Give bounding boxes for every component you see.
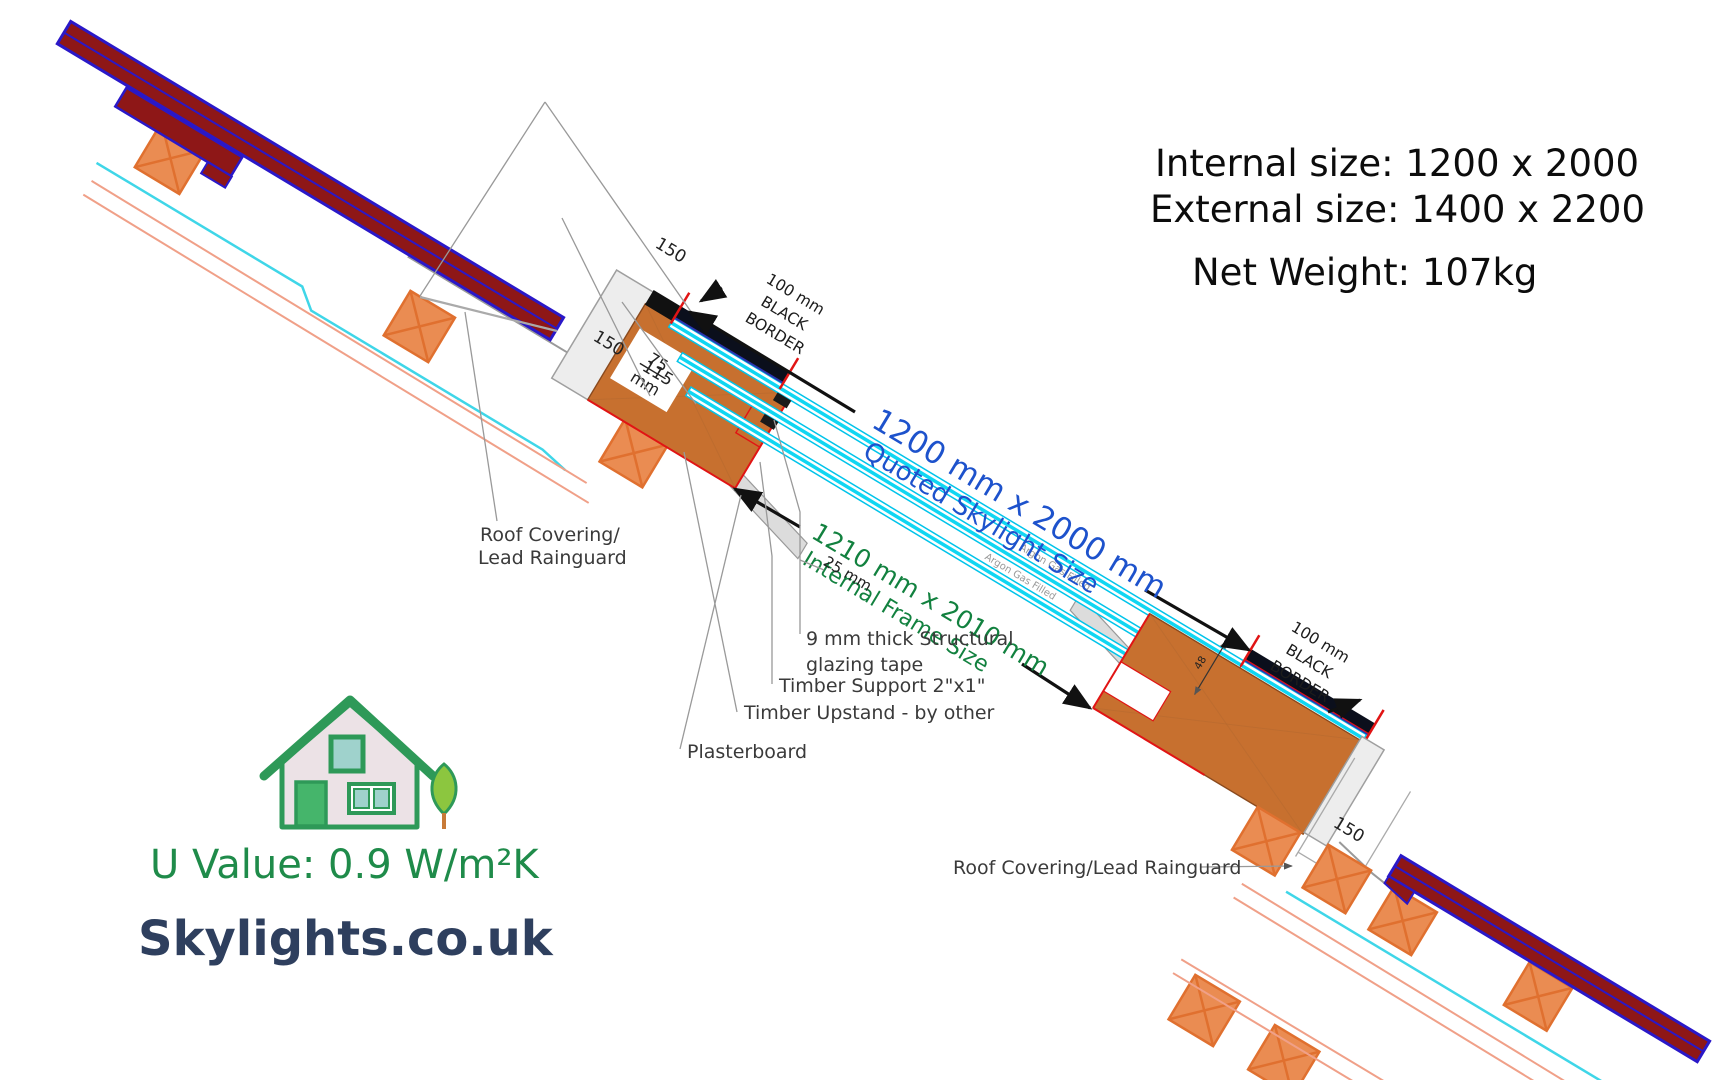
roof-covering-left-label-2: Lead Rainguard [478, 547, 627, 569]
roof-covering-left-label-1: Roof Covering/ [480, 524, 620, 546]
house-window-pane-2 [374, 789, 389, 808]
net-weight-text: Net Weight: 107kg [1192, 251, 1537, 294]
external-size-text: External size: 1400 x 2200 [1150, 188, 1645, 231]
black-border-label-top: 100 mm BLACK BORDER [740, 270, 832, 359]
tree-icon [432, 764, 456, 814]
roof-covering-left-leader [465, 312, 497, 521]
underlay-line-left-1 [89, 181, 588, 483]
timber-upstand-label: Timber Upstand - by other [743, 702, 995, 724]
attic-window [331, 737, 363, 771]
glazing-tape-label-1: 9 mm thick Structural [806, 628, 1013, 650]
roof-tiles-right [1381, 856, 1709, 1074]
logo-text: Skylights.co.uk [138, 911, 554, 967]
u-value-label: U Value: 0.9 W/m²K [150, 842, 540, 888]
spec-text-block: Internal size: 1200 x 2000 External size… [1150, 142, 1645, 294]
house-window-pane-1 [354, 789, 369, 808]
house-icon [264, 700, 456, 829]
border-arrow-top [701, 288, 722, 301]
plasterboard-leader [680, 495, 741, 749]
plasterboard-label: Plasterboard [687, 741, 807, 763]
timber-support-label: Timber Support 2"x1" [778, 675, 985, 697]
internal-size-text: Internal size: 1200 x 2000 [1155, 142, 1639, 185]
skylight-technical-drawing: 75 mm Argon Gas Filled Argon Gas Filled [0, 0, 1720, 1080]
roof-covering-bottom-label: Roof Covering/Lead Rainguard [953, 857, 1241, 879]
timber-upstand-leader [684, 452, 737, 712]
glazing-tape-label-2: glazing tape [806, 654, 923, 676]
house-door [296, 782, 326, 826]
brand-block: U Value: 0.9 W/m²K Skylights.co.uk [138, 700, 554, 967]
underlay-line-left-2 [81, 195, 591, 503]
